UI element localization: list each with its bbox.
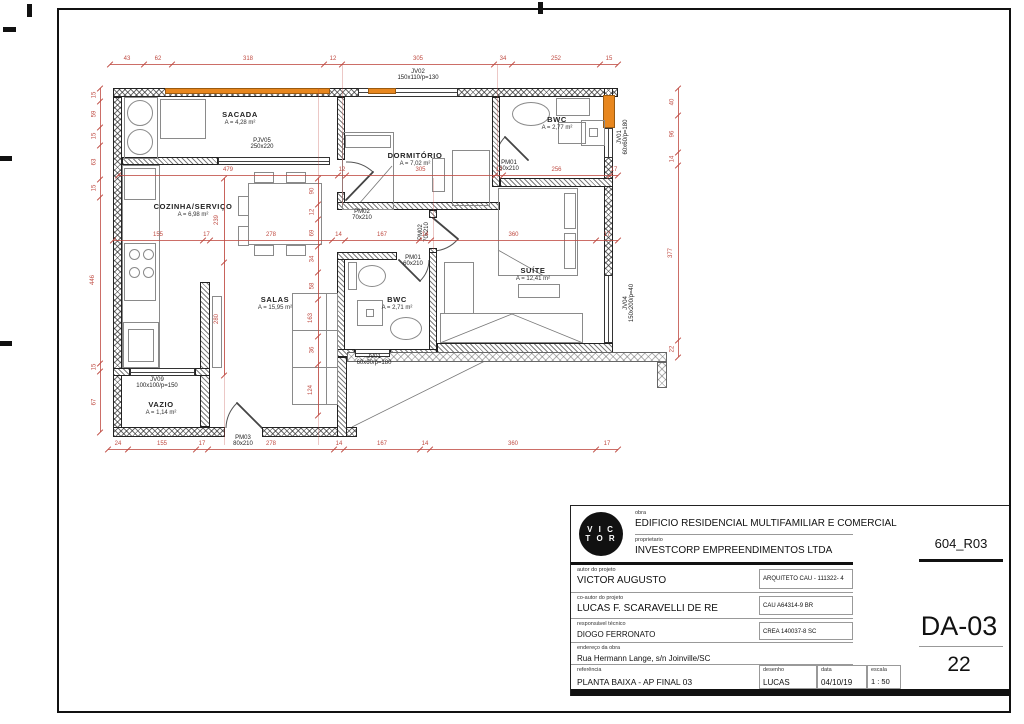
endereco-value: Rua Hermann Lange, s/n Joinville/SC — [577, 654, 710, 664]
room-area-label: A = 12,41 m² — [516, 276, 550, 282]
furniture-pillow — [564, 193, 576, 229]
furniture-chair — [254, 245, 274, 256]
dimension-label: 479 — [223, 167, 233, 173]
opening-size: 70x210 — [352, 215, 372, 221]
furniture-toilet-bowl — [358, 265, 386, 287]
dimension-label: 15 — [92, 133, 98, 140]
room-area-label: A = 2,71 m² — [382, 305, 413, 311]
dimension-label: 15 — [606, 56, 613, 62]
dimension-label: 15 — [92, 185, 98, 192]
dimension-label: 256 — [551, 167, 561, 173]
resp-reg: CREA 140037-8 SC — [763, 629, 816, 636]
opening-label: PJV05250x220 — [250, 138, 273, 150]
dimension-label: 17 — [203, 232, 210, 238]
window-opening — [130, 368, 195, 376]
opening-size: 60x60/p=180 — [623, 120, 629, 155]
guide-line — [342, 64, 343, 205]
furniture-desk-dormitorio — [452, 150, 490, 206]
dimension-label: 67 — [92, 398, 98, 405]
dimension-line — [110, 64, 618, 65]
wall — [500, 178, 613, 187]
dimension-label: 305 — [415, 167, 425, 173]
dimension-label: 43 — [124, 56, 131, 62]
logo-text: V I C — [587, 525, 615, 534]
furniture-shower-drain — [366, 309, 374, 317]
divider — [571, 642, 853, 643]
furniture-bathroom-sink — [512, 102, 550, 126]
furniture-pillow — [345, 135, 391, 148]
wall — [337, 357, 347, 437]
room-label: DORMITÓRIO — [388, 151, 443, 160]
referencia-value: PLANTA BAIXA - AP FINAL 03 — [577, 677, 692, 687]
furniture-washing-machine — [127, 100, 153, 126]
obra-label: obra — [635, 510, 646, 516]
project-revision: 604_R03 — [935, 536, 988, 551]
furniture-chair — [286, 245, 306, 256]
obra-value: EDIFICIO RESIDENCIAL MULTIFAMILIAR E COM… — [635, 519, 897, 529]
dimension-label: 124 — [308, 384, 314, 394]
referencia-label: referência — [577, 667, 601, 673]
wall — [113, 368, 130, 376]
dimension-line — [108, 449, 618, 450]
coautor-reg: CAU A64314-9 BR — [763, 603, 813, 610]
wall — [429, 252, 437, 357]
dimension-label: 17 — [611, 167, 618, 173]
dimension-label: 12 — [330, 56, 337, 62]
dimension-line — [100, 88, 101, 432]
dimension-label: 17 — [604, 441, 611, 447]
coautor-label: co-autor do projeto — [577, 595, 623, 601]
dimension-label: 12 — [339, 167, 346, 173]
furniture-pillow — [564, 233, 576, 269]
wall — [195, 368, 210, 376]
dimension-label: 305 — [413, 56, 423, 62]
opening-size: 250x220 — [250, 144, 273, 150]
dimension-label: 239 — [214, 215, 220, 225]
furniture-bathroom-sink — [390, 317, 422, 340]
opening-label: JV04150x200/p=40 — [623, 284, 635, 322]
dimension-label: 58 — [310, 282, 316, 289]
dimension-label: 90 — [310, 188, 316, 195]
dimension-label: 163 — [308, 312, 314, 322]
victor-logo: V I C T O R — [579, 512, 623, 556]
data-label: data — [821, 667, 832, 673]
room-label: VAZIO — [148, 400, 173, 409]
furniture-chair — [254, 172, 274, 183]
dimension-line — [678, 88, 679, 357]
furniture-burner — [129, 249, 140, 260]
furniture-bed-bench — [518, 284, 560, 298]
furniture-burner — [129, 267, 140, 278]
divider-thick — [571, 562, 853, 565]
room-area-label: A = 2,77 m² — [542, 125, 573, 131]
dimension-label: 278 — [266, 232, 276, 238]
dimension-label: 24 — [115, 441, 122, 447]
bottom-bar — [571, 689, 1009, 696]
furniture-toilet-tank — [348, 262, 357, 290]
wall — [113, 97, 122, 437]
furniture-chair — [286, 172, 306, 183]
dimension-label: 167 — [377, 232, 387, 238]
escala-value: 1 : 50 — [871, 677, 890, 687]
divider — [571, 592, 853, 593]
dimension-label: 59 — [92, 111, 98, 118]
furniture-desk-suite — [444, 262, 474, 314]
dimension-label: 17 — [199, 441, 206, 447]
room-area-label: A = 6,98 m² — [178, 212, 209, 218]
room-label: BWC — [547, 115, 567, 124]
dimension-label: 12 — [496, 167, 503, 173]
opening-label: JV0160x60/p=180 — [357, 354, 392, 366]
data-value: 04/10/19 — [821, 678, 852, 688]
dimension-label: 63 — [92, 159, 98, 166]
sheet-code: DA-03 — [921, 611, 998, 642]
divider — [571, 618, 853, 619]
room-label: SACADA — [222, 110, 258, 119]
dimension-label: 15 — [92, 91, 98, 98]
dimension-label: 14 — [336, 441, 343, 447]
opening-size: 100x100/p=150 — [136, 383, 178, 389]
wall — [337, 252, 345, 357]
proprietario-value: INVESTCORP EMPREENDIMENTOS LTDA — [635, 546, 832, 556]
furniture-chair — [238, 196, 249, 216]
furniture-sofa-back-line — [326, 293, 327, 405]
dimension-label: 14 — [422, 232, 429, 238]
guide-line — [497, 64, 498, 178]
dimension-label: 318 — [243, 56, 253, 62]
dimension-label: 62 — [155, 56, 162, 62]
room-area-label: A = 1,14 m² — [146, 410, 177, 416]
room-area-label: A = 15,95 m² — [258, 305, 292, 311]
opening-label: PM0270x210 — [352, 209, 372, 221]
dimension-label: 22 — [670, 345, 676, 352]
opening-label: JV02150x110/p=130 — [397, 69, 438, 81]
divider — [919, 646, 1003, 647]
opening-size: 150x110/p=130 — [397, 75, 438, 81]
opening-size: 60x60/p=180 — [357, 360, 392, 366]
dimension-label: 360 — [508, 441, 518, 447]
wall — [347, 352, 667, 362]
opening-label: PM0160x210 — [403, 255, 423, 267]
logo-text: T O R — [585, 534, 616, 543]
opening-size: 80x210 — [233, 441, 253, 447]
escala-label: escala — [871, 667, 887, 673]
dimension-label: 34 — [310, 256, 316, 263]
resp-value: DIOGO FERRONATO — [577, 630, 655, 640]
highlight-strip — [368, 88, 396, 94]
dimension-label: 377 — [668, 247, 674, 257]
furniture-sacada-bench — [160, 99, 206, 139]
furniture-refrigerator — [124, 168, 156, 200]
dimension-label: 36 — [310, 347, 316, 354]
sheet-number: 22 — [947, 653, 970, 677]
opening-label: JV09100x100/p=150 — [136, 377, 178, 389]
furniture-shower-drain — [589, 128, 598, 137]
dimension-label: 14 — [422, 441, 429, 447]
opening-label: PM0380x210 — [233, 435, 253, 447]
furniture-burner — [143, 267, 154, 278]
autor-reg: ARQUITETO CAU - 111322- 4 — [763, 576, 844, 583]
wall — [200, 282, 210, 427]
furniture-burner — [143, 249, 154, 260]
autor-label: autor do projeto — [577, 567, 616, 573]
window-opening — [604, 275, 613, 343]
room-label: SUÍTE — [520, 266, 545, 275]
dimension-label: 278 — [266, 441, 276, 447]
divider — [635, 534, 853, 535]
dimension-label: 155 — [157, 441, 167, 447]
dimension-line — [118, 175, 618, 176]
room-label: BWC — [387, 295, 407, 304]
wall — [337, 252, 397, 260]
opening-size: 60x210 — [403, 261, 423, 267]
coautor-value: LUCAS F. SCARAVELLI DE RE — [577, 604, 718, 614]
furniture-bathroom-cabinet — [556, 98, 590, 116]
dimension-label: 14 — [335, 232, 342, 238]
furniture-wardrobe — [440, 313, 583, 343]
dimension-label: 167 — [377, 441, 387, 447]
dimension-label: 155 — [153, 232, 163, 238]
dimension-line — [113, 240, 618, 241]
window-opening — [218, 157, 330, 165]
dimension-label: 69 — [310, 229, 316, 236]
room-label: COZINHA/SERVIÇO — [154, 202, 233, 211]
furniture-sofa-cushion-line — [292, 330, 338, 331]
title-block: V I C T O R obra EDIFICIO RESIDENCIAL MU… — [570, 505, 1009, 696]
dimension-label: 40 — [670, 98, 676, 105]
wall — [657, 362, 667, 388]
furniture-laundry-tank — [127, 129, 153, 155]
dimension-label: 34 — [500, 56, 507, 62]
dimension-label: 96 — [670, 130, 676, 137]
furniture-tv-rack — [212, 296, 222, 368]
endereco-label: endereço da obra — [577, 645, 620, 651]
wall — [113, 427, 225, 437]
dimension-label: 446 — [90, 275, 96, 285]
dimension-label: 14 — [670, 155, 676, 162]
dimension-label: 252 — [551, 56, 561, 62]
dimension-label: 12 — [310, 208, 316, 215]
dimension-label: 280 — [214, 313, 220, 323]
opening-size: 150x200/p=40 — [629, 284, 635, 322]
dimension-label: 360 — [508, 232, 518, 238]
autor-value: VICTOR AUGUSTO — [577, 576, 666, 586]
resp-label: responsável técnico — [577, 621, 626, 627]
divider-thick — [919, 559, 1003, 562]
dimension-label: 15 — [92, 364, 98, 371]
window-opening — [604, 128, 613, 158]
room-area-label: A = 4,28 m² — [225, 120, 256, 126]
room-label: SALAS — [261, 295, 289, 304]
desenho-label: desenho — [763, 667, 784, 673]
furniture-sink-basin — [128, 329, 154, 362]
dimension-label: 17 — [604, 232, 611, 238]
highlight-strip — [165, 88, 330, 94]
proprietario-label: proprietario — [635, 537, 663, 543]
desenho-value: LUCAS — [763, 678, 790, 688]
opening-label: JV0160x60/p=180 — [617, 120, 629, 155]
dimension-line — [224, 178, 225, 375]
furniture-chair — [238, 226, 249, 246]
